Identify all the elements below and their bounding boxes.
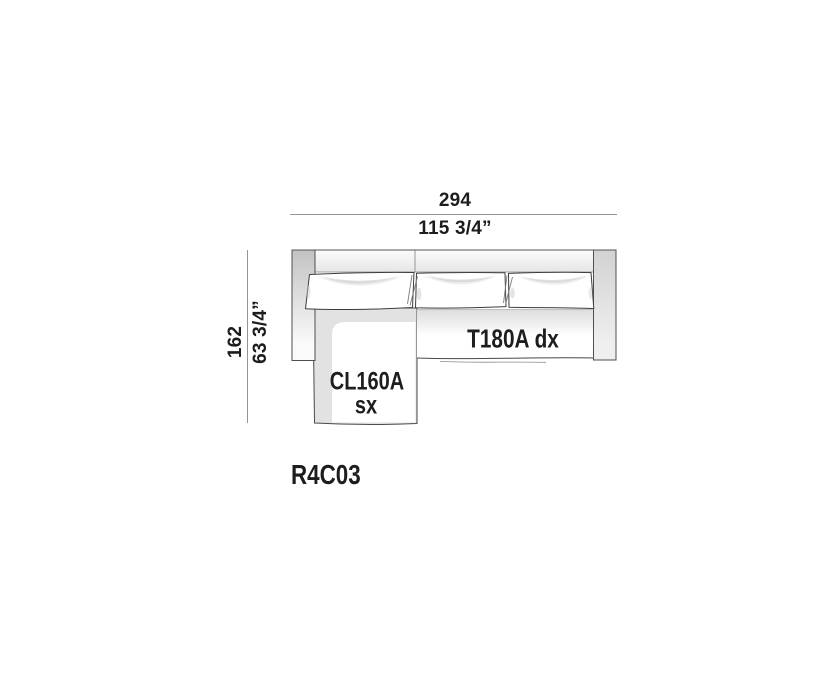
width-dimension-cm: 294 xyxy=(439,190,471,212)
width-dimension-line xyxy=(290,214,617,215)
right-armrest xyxy=(594,250,617,360)
depth-dimension-cm: 162 xyxy=(225,326,247,358)
back-cushions xyxy=(306,272,594,309)
chaise-module-side-label: sx xyxy=(355,392,377,421)
model-code: R4C03 xyxy=(291,459,361,491)
end-sofa-module-label: T180A dx xyxy=(467,324,559,355)
depth-dimension-line xyxy=(247,250,248,423)
width-dimension-inches: 115 3/4” xyxy=(418,218,491,240)
sofa-top-view-drawing xyxy=(288,242,620,428)
sofa-spec-diagram-page: 294 115 3/4” 162 63 3/4” xyxy=(0,0,840,679)
front-edge-sketch-stroke xyxy=(440,362,546,363)
backrest-band xyxy=(315,250,593,272)
depth-dimension-inches: 63 3/4” xyxy=(250,300,272,364)
